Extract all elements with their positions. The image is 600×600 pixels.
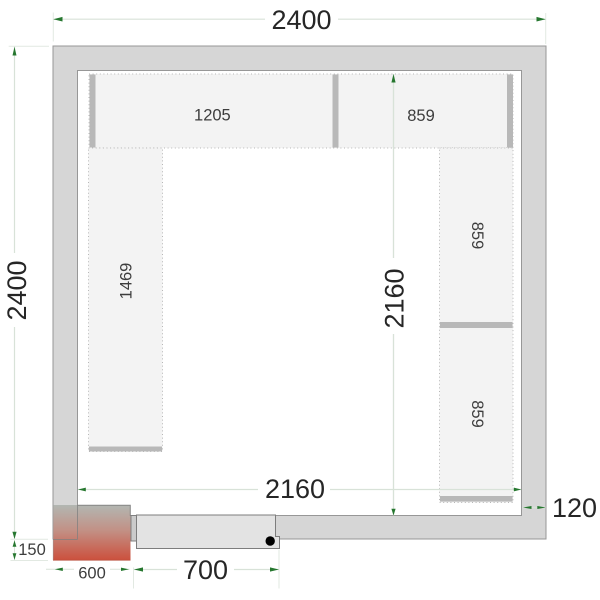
svg-text:2160: 2160 (265, 474, 325, 504)
svg-text:600: 600 (78, 564, 106, 582)
svg-text:1205: 1205 (194, 107, 231, 125)
svg-text:120: 120 (552, 493, 597, 523)
svg-text:2160: 2160 (380, 268, 410, 328)
svg-text:2400: 2400 (271, 5, 331, 35)
svg-text:2400: 2400 (2, 260, 32, 320)
svg-text:1469: 1469 (117, 263, 135, 300)
svg-text:859: 859 (468, 222, 486, 250)
svg-text:859: 859 (407, 107, 435, 125)
svg-text:700: 700 (183, 555, 228, 585)
svg-text:150: 150 (18, 541, 46, 559)
svg-text:859: 859 (468, 400, 486, 428)
